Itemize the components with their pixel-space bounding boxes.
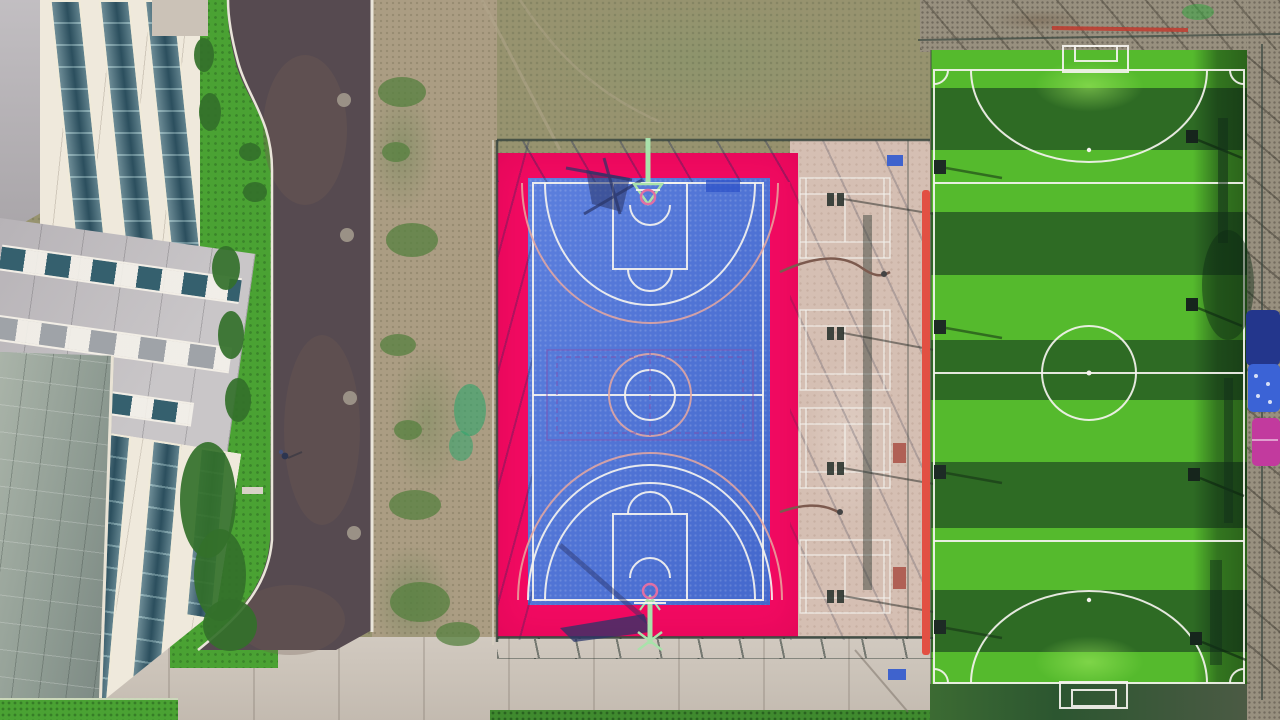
soccer-field-markings xyxy=(934,46,1244,708)
canopy-dot xyxy=(1268,400,1272,404)
aerial-sports-complex-photo xyxy=(0,0,1280,720)
bush xyxy=(378,77,426,107)
pole-shadow-foot xyxy=(827,193,834,206)
bush xyxy=(394,420,422,440)
manhole-cover xyxy=(337,93,351,107)
light-pole-shadows xyxy=(827,193,844,603)
shadow-line xyxy=(843,333,934,350)
court-blue-patch xyxy=(706,180,740,192)
tree xyxy=(243,182,267,202)
goal-inner xyxy=(1075,46,1117,61)
basketball-hoop-top xyxy=(566,138,662,214)
pole-shadow-bar xyxy=(1210,560,1222,665)
free-throw-arc-top xyxy=(628,269,672,291)
floodlight xyxy=(1186,130,1198,143)
corner-arc xyxy=(1230,669,1244,683)
floodlight-shadow xyxy=(1200,478,1244,496)
hedge-mass xyxy=(203,599,257,651)
pedestrian xyxy=(282,453,289,460)
manhole-cover xyxy=(343,391,357,405)
goal-bottom xyxy=(1060,682,1127,708)
floodlights-right xyxy=(1186,130,1202,645)
pole-shadow-bar xyxy=(1218,118,1228,243)
red-bench xyxy=(893,443,906,463)
badminton-court xyxy=(800,310,890,390)
no-charge-arc-bottom xyxy=(630,558,670,578)
floodlight-shadow xyxy=(946,328,1002,338)
pedestrian-bag xyxy=(279,450,283,454)
hedge-bush xyxy=(212,246,240,290)
badminton-courts xyxy=(780,155,934,712)
road-wear-patch xyxy=(263,55,347,205)
hedge-bush xyxy=(225,378,251,422)
field-fence-top xyxy=(918,34,1280,40)
hedge-bush xyxy=(194,38,214,72)
goal-top xyxy=(1063,46,1128,72)
floodlight xyxy=(934,320,946,334)
pole-shadow-bar xyxy=(1224,378,1233,523)
scrub-vegetation xyxy=(378,0,1214,646)
floodlight-shadow xyxy=(946,168,1002,178)
hoop-frame xyxy=(634,184,662,204)
manhole-cover xyxy=(347,526,361,540)
corner-arc xyxy=(1230,70,1244,84)
sprinkler xyxy=(881,271,887,277)
canopy-dot xyxy=(1254,374,1258,378)
corner-arc xyxy=(934,70,948,84)
water-hose xyxy=(780,506,838,512)
corner-arc xyxy=(934,669,948,683)
penalty-spot-bottom xyxy=(1087,598,1091,602)
pole-shadow-foot xyxy=(827,590,834,603)
water-hose xyxy=(780,258,890,275)
floodlight xyxy=(934,620,946,634)
goal-frame xyxy=(1063,46,1128,72)
red-paint-mark xyxy=(1052,28,1188,30)
floodlight xyxy=(1190,632,1202,645)
green-safety-net xyxy=(449,431,473,461)
badminton-court xyxy=(800,178,890,258)
floodlight-shadow xyxy=(946,473,1002,483)
floodlight xyxy=(1186,298,1198,311)
hoop-backboard-shadow xyxy=(586,170,630,212)
pole-shadow-foot xyxy=(827,462,834,475)
pole-shadow-lines xyxy=(843,199,934,612)
badminton-court xyxy=(800,408,890,488)
hedge-bush xyxy=(199,93,221,131)
bush xyxy=(382,142,410,162)
bush xyxy=(390,582,450,622)
canopy-magenta xyxy=(1252,418,1280,466)
goal-inner xyxy=(1072,690,1116,706)
hedge-row xyxy=(180,38,267,651)
dirt-path xyxy=(482,0,560,150)
penalty-spot-top xyxy=(1087,148,1091,152)
floodlight xyxy=(934,465,946,479)
canopy-blue xyxy=(1248,364,1280,412)
dirt-path xyxy=(520,0,660,122)
bush xyxy=(380,334,416,356)
manhole-cover xyxy=(340,228,354,242)
centre-spot xyxy=(1087,371,1092,376)
tree xyxy=(239,143,261,161)
floodlight xyxy=(1188,468,1200,481)
penalty-arc-bottom xyxy=(971,591,1207,683)
line-art-overlay xyxy=(0,0,1280,720)
hedge-bush xyxy=(218,311,244,359)
bush xyxy=(386,223,438,257)
floodlights-left xyxy=(934,160,946,634)
free-throw-arc-bottom xyxy=(628,492,672,514)
red-bench xyxy=(893,567,906,589)
canopy-dot xyxy=(1256,394,1260,398)
blue-bench xyxy=(888,669,906,680)
bush xyxy=(389,490,441,520)
soccer-field-objects xyxy=(918,34,1280,700)
canopy-dot xyxy=(1266,382,1270,386)
pole-shadow-foot xyxy=(827,327,834,340)
road-wear-patch xyxy=(284,335,360,525)
no-charge-arc-top xyxy=(630,205,670,225)
walkway-seam xyxy=(855,650,908,712)
green-safety-net xyxy=(454,384,486,436)
three-point-arc-bottom xyxy=(545,483,755,600)
blue-bin xyxy=(887,155,903,166)
hoop-shadow-streak xyxy=(560,545,648,622)
grass-patch xyxy=(1182,4,1214,20)
red-side-strip xyxy=(922,190,930,655)
shadow-line xyxy=(843,199,934,214)
shadow-line xyxy=(843,468,934,484)
floodlight-shadows-left xyxy=(946,168,1002,638)
outer-arc-bottom xyxy=(518,453,782,600)
bench xyxy=(242,487,263,494)
bush xyxy=(436,622,480,646)
floodlight-shadow xyxy=(1202,642,1246,660)
sprinkler xyxy=(837,509,843,515)
canopy-navy xyxy=(1246,310,1280,366)
court-boundary xyxy=(533,183,763,600)
floodlight xyxy=(934,160,946,174)
